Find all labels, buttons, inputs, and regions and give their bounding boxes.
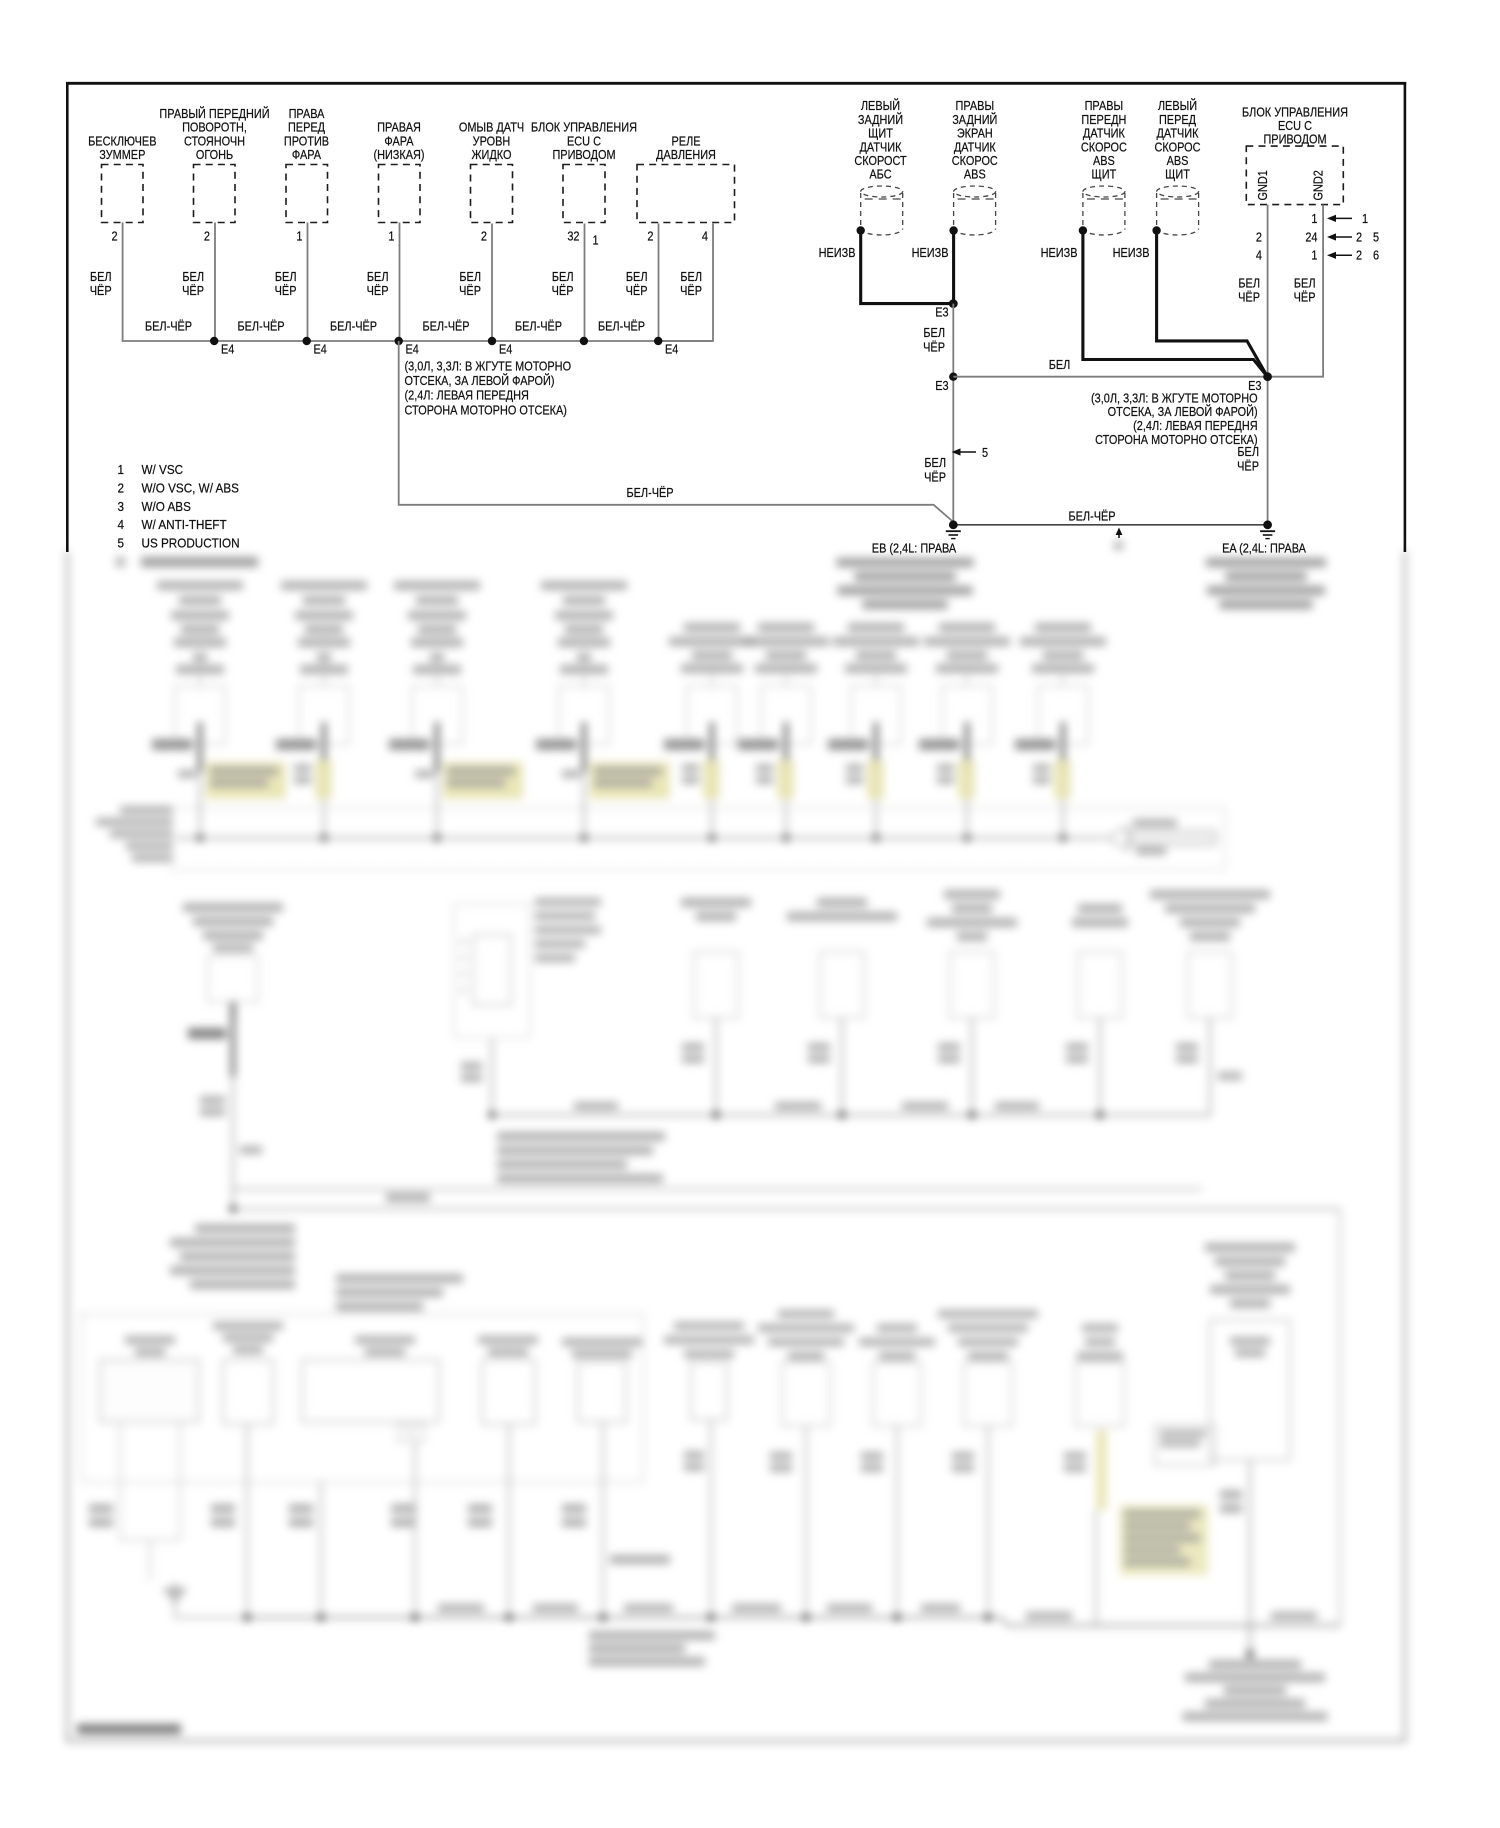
svg-text:US PRODUCTION: US PRODUCTION <box>142 536 240 551</box>
svg-text:ЧЁР: ЧЁР <box>1294 290 1316 305</box>
svg-text:2: 2 <box>1356 248 1362 263</box>
svg-text:БЕЛ: БЕЛ <box>367 269 389 284</box>
svg-text:2: 2 <box>1256 229 1262 244</box>
svg-text:5: 5 <box>117 536 124 551</box>
svg-text:ЩИТ: ЩИТ <box>1092 167 1117 182</box>
svg-text:3: 3 <box>117 499 124 514</box>
svg-text:(3,0Л, 3,3Л: В ЖГУТЕ МОТОРНО: (3,0Л, 3,3Л: В ЖГУТЕ МОТОРНО <box>405 359 572 374</box>
svg-text:4: 4 <box>1256 248 1262 263</box>
svg-text:1: 1 <box>1311 211 1317 226</box>
svg-text:СТОРОНА МОТОРНО ОТСЕКА): СТОРОНА МОТОРНО ОТСЕКА) <box>1095 432 1257 447</box>
svg-text:НЕИЗВ: НЕИЗВ <box>912 245 949 260</box>
svg-text:EB (2,4L: ПРАВА: EB (2,4L: ПРАВА <box>872 540 956 555</box>
svg-text:E4: E4 <box>406 342 420 357</box>
svg-text:ЧЁР: ЧЁР <box>1237 459 1259 474</box>
svg-text:E4: E4 <box>221 342 235 357</box>
svg-text:(2,4Л: ЛЕВАЯ ПЕРЕДНЯ: (2,4Л: ЛЕВАЯ ПЕРЕДНЯ <box>405 388 529 403</box>
svg-text:ПРИВОДОМ: ПРИВОДОМ <box>552 147 615 162</box>
svg-text:НЕИЗВ: НЕИЗВ <box>819 245 856 260</box>
svg-text:БЕЛ-ЧЁР: БЕЛ-ЧЁР <box>330 319 377 334</box>
svg-text:5: 5 <box>1373 229 1379 244</box>
svg-text:БЕЛ: БЕЛ <box>1237 444 1259 459</box>
svg-text:ЧЁР: ЧЁР <box>1238 290 1260 305</box>
svg-text:ЧЁР: ЧЁР <box>367 283 389 298</box>
svg-text:ДАВЛЕНИЯ: ДАВЛЕНИЯ <box>656 147 716 162</box>
svg-text:ЖИДКО: ЖИДКО <box>471 147 511 162</box>
svg-text:ЧЁР: ЧЁР <box>552 283 574 298</box>
svg-text:GND2: GND2 <box>1310 170 1325 201</box>
svg-text:БЕЛ: БЕЛ <box>552 269 574 284</box>
svg-text:2: 2 <box>204 229 210 244</box>
svg-text:E3: E3 <box>935 305 949 320</box>
svg-text:5: 5 <box>982 445 988 460</box>
svg-text:ФАРА: ФАРА <box>292 147 321 162</box>
svg-text:ЧЁР: ЧЁР <box>275 283 297 298</box>
svg-text:ABS: ABS <box>964 167 986 182</box>
svg-text:E4: E4 <box>499 342 513 357</box>
svg-text:32: 32 <box>567 229 579 244</box>
svg-text:ЧЁР: ЧЁР <box>923 340 945 355</box>
svg-text:БЕЛ-ЧЁР: БЕЛ-ЧЁР <box>515 319 562 334</box>
svg-text:4: 4 <box>702 229 708 244</box>
svg-text:БЕЛ: БЕЛ <box>275 269 297 284</box>
svg-text:БЕЛ-ЧЁР: БЕЛ-ЧЁР <box>598 319 645 334</box>
svg-text:2: 2 <box>647 229 653 244</box>
svg-text:ЧЁР: ЧЁР <box>626 283 648 298</box>
svg-text:E4: E4 <box>665 342 679 357</box>
svg-text:1: 1 <box>1311 248 1317 263</box>
svg-text:БЕЛ: БЕЛ <box>1049 357 1071 372</box>
svg-text:БЕЛ: БЕЛ <box>459 269 481 284</box>
svg-text:6: 6 <box>1373 248 1379 263</box>
svg-text:БЕЛ: БЕЛ <box>1294 276 1316 291</box>
svg-text:БЕЛ: БЕЛ <box>182 269 204 284</box>
svg-text:1: 1 <box>1362 211 1368 226</box>
svg-text:БЕЛ-ЧЁР: БЕЛ-ЧЁР <box>237 319 284 334</box>
svg-text:2: 2 <box>117 481 124 496</box>
svg-text:EA (2,4L: ПРАВА: EA (2,4L: ПРАВА <box>1222 540 1306 555</box>
svg-text:GND1: GND1 <box>1255 170 1270 201</box>
svg-text:24: 24 <box>1305 229 1317 244</box>
svg-text:АБС: АБС <box>869 167 892 182</box>
svg-text:БЕЛ-ЧЁР: БЕЛ-ЧЁР <box>145 319 192 334</box>
svg-text:E4: E4 <box>314 342 328 357</box>
svg-text:БЕЛ: БЕЛ <box>924 455 946 470</box>
svg-text:НЕИЗВ: НЕИЗВ <box>1113 245 1150 260</box>
svg-text:ОТСЕКА, ЗА ЛЕВОЙ ФАРОЙ): ОТСЕКА, ЗА ЛЕВОЙ ФАРОЙ) <box>405 372 555 388</box>
svg-text:СТОРОНА МОТОРНО ОТСЕКА): СТОРОНА МОТОРНО ОТСЕКА) <box>405 402 567 417</box>
svg-text:ЧЁР: ЧЁР <box>182 283 204 298</box>
svg-text:2: 2 <box>1356 229 1362 244</box>
svg-text:ЧЁР: ЧЁР <box>680 283 702 298</box>
svg-text:(НИЗКАЯ): (НИЗКАЯ) <box>373 147 424 162</box>
svg-text:БЕЛ-ЧЁР: БЕЛ-ЧЁР <box>626 485 673 500</box>
svg-text:БЕЛ-ЧЁР: БЕЛ-ЧЁР <box>1068 508 1115 523</box>
svg-text:БЕЛ: БЕЛ <box>923 325 945 340</box>
svg-text:НЕИЗВ: НЕИЗВ <box>1041 245 1078 260</box>
svg-text:W/ VSC: W/ VSC <box>142 462 184 477</box>
svg-text:БЕЛ: БЕЛ <box>1238 276 1260 291</box>
svg-text:БЕЛ-ЧЁР: БЕЛ-ЧЁР <box>422 319 469 334</box>
svg-text:ЩИТ: ЩИТ <box>1165 167 1190 182</box>
svg-text:ПРИВОДОМ: ПРИВОДОМ <box>1263 131 1326 146</box>
svg-text:2: 2 <box>481 229 487 244</box>
svg-text:(3,0Л, 3,3Л: В ЖГУТЕ МОТОРНО: (3,0Л, 3,3Л: В ЖГУТЕ МОТОРНО <box>1091 390 1258 405</box>
svg-text:БЕЛ: БЕЛ <box>680 269 702 284</box>
svg-text:2: 2 <box>112 229 118 244</box>
svg-text:ОТСЕКА, ЗА ЛЕВОЙ ФАРОЙ): ОТСЕКА, ЗА ЛЕВОЙ ФАРОЙ) <box>1108 403 1258 419</box>
svg-text:W/ ANTI-THEFT: W/ ANTI-THEFT <box>142 518 228 533</box>
svg-text:ЧЁР: ЧЁР <box>90 283 112 298</box>
svg-text:W/O VSC, W/ ABS: W/O VSC, W/ ABS <box>142 481 239 496</box>
svg-text:ЧЁР: ЧЁР <box>459 283 481 298</box>
svg-text:БЕЛ: БЕЛ <box>90 269 112 284</box>
svg-text:ЗУММЕР: ЗУММЕР <box>99 147 145 162</box>
svg-text:E3: E3 <box>935 378 949 393</box>
svg-text:4: 4 <box>117 518 124 533</box>
svg-text:БЕЛ: БЕЛ <box>626 269 648 284</box>
svg-text:ЧЁР: ЧЁР <box>924 470 946 485</box>
svg-text:ОГОНЬ: ОГОНЬ <box>196 147 233 162</box>
svg-text:W/O ABS: W/O ABS <box>142 499 191 514</box>
svg-text:1: 1 <box>117 462 124 477</box>
svg-text:1: 1 <box>593 233 599 248</box>
svg-text:1: 1 <box>388 229 394 244</box>
svg-text:(2,4Л: ЛЕВАЯ ПЕРЕДНЯ: (2,4Л: ЛЕВАЯ ПЕРЕДНЯ <box>1133 418 1257 433</box>
svg-text:1: 1 <box>296 229 302 244</box>
